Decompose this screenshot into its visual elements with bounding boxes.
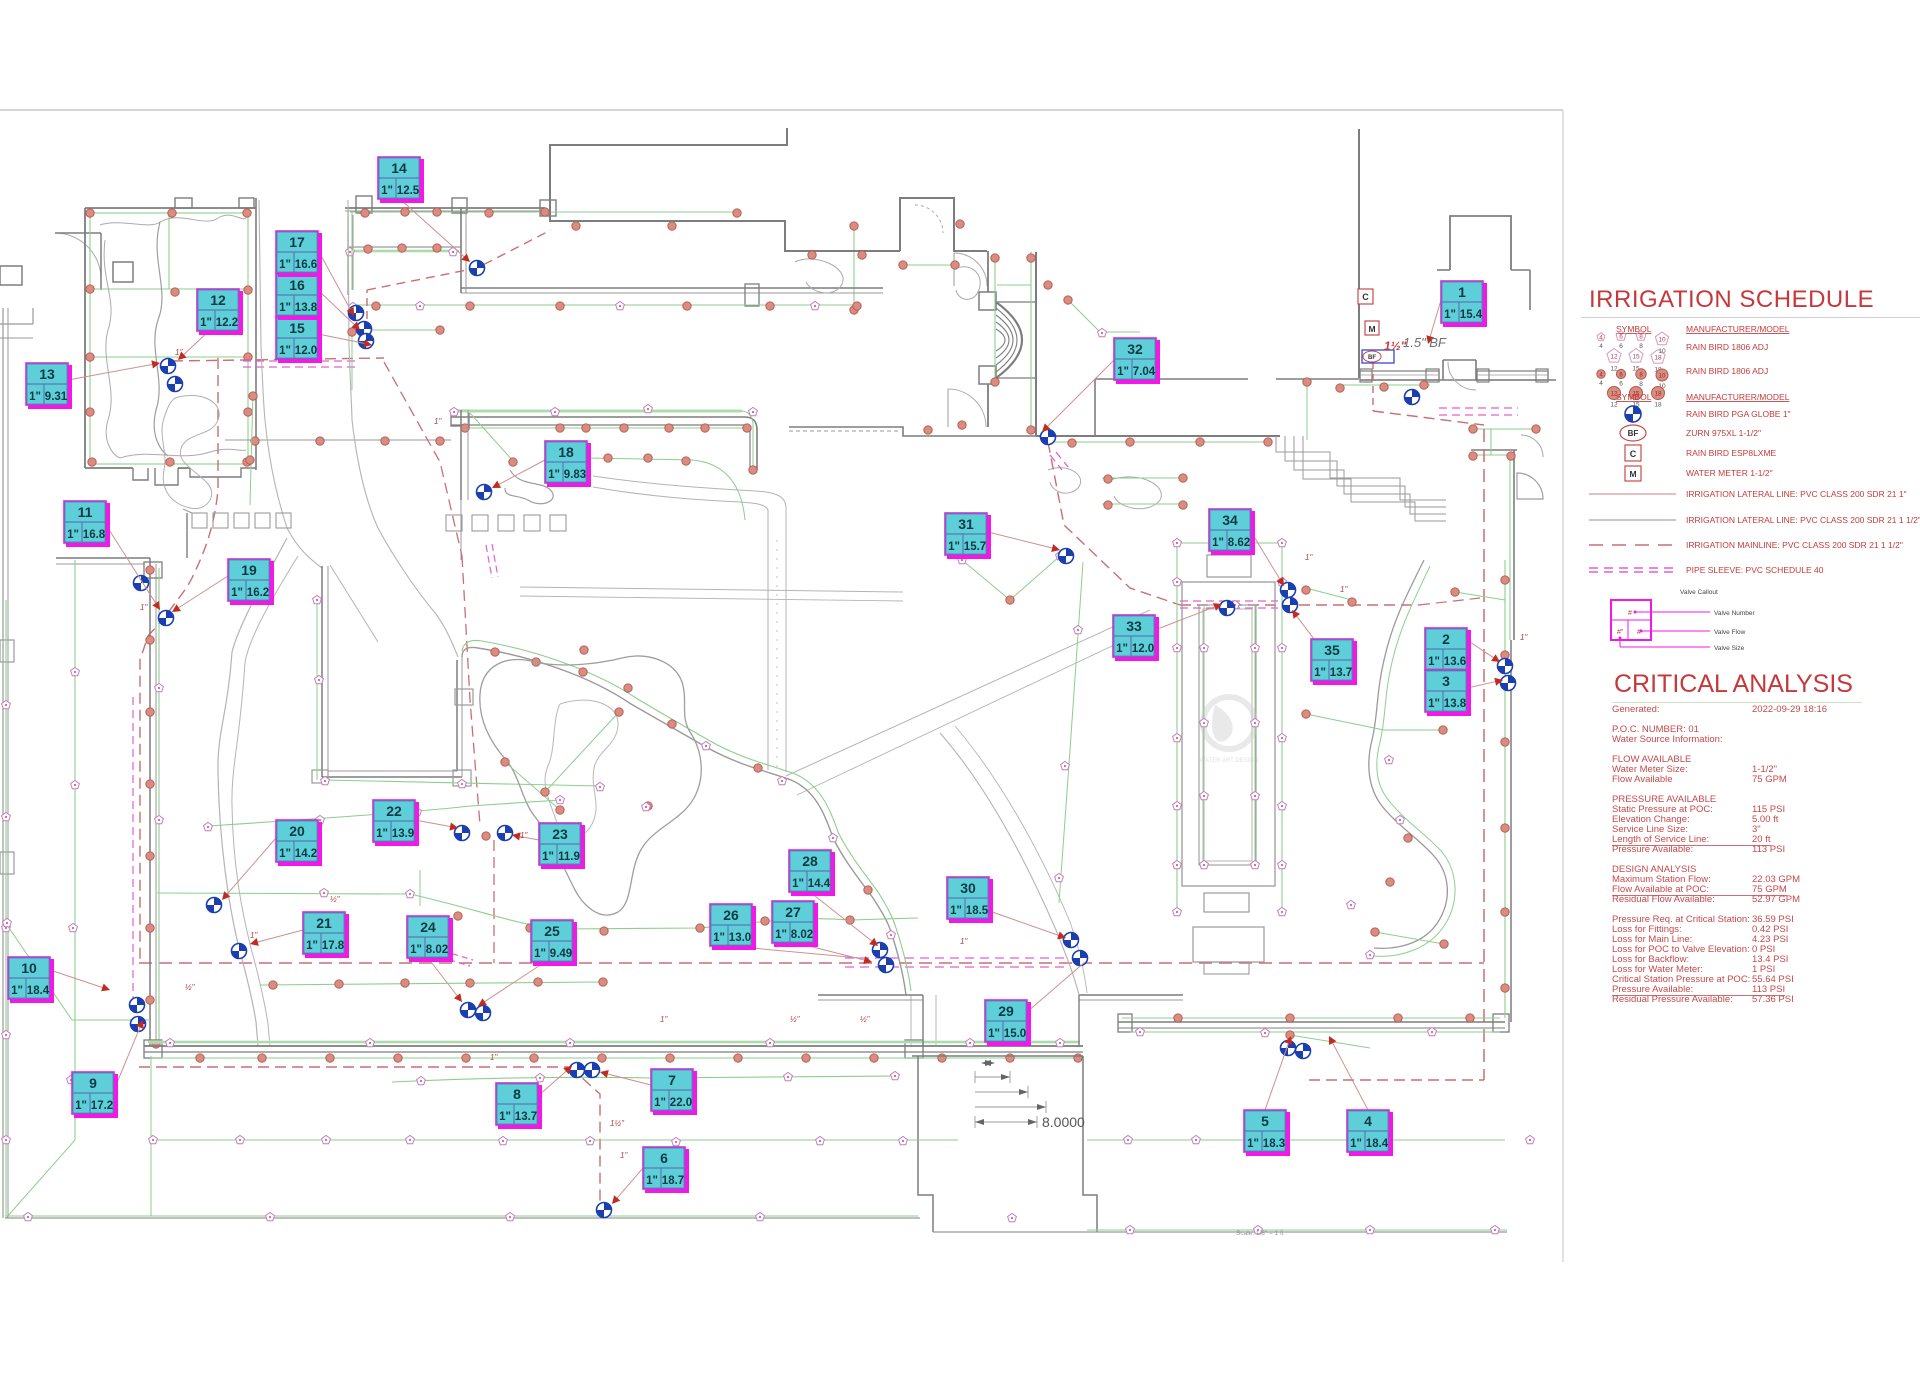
svg-text:Valve Size: Valve Size [1714,645,1745,652]
svg-text:18: 18 [1654,355,1662,362]
svg-text:15: 15 [1632,354,1640,361]
svg-text:WATER METER 1-1/2": WATER METER 1-1/2" [1686,468,1773,478]
svg-text:4: 4 [1599,335,1603,342]
svg-text:4: 4 [1599,380,1603,387]
svg-text:#: # [1628,610,1632,617]
svg-text:12: 12 [1610,402,1618,409]
svg-text:SYMBOL: SYMBOL [1616,324,1652,334]
svg-text:Valve Callout: Valve Callout [1680,589,1718,596]
svg-text:6: 6 [1619,334,1623,341]
svg-text:RAIN BIRD 1806 ADJ: RAIN BIRD 1806 ADJ [1686,342,1768,352]
svg-text:10: 10 [1658,337,1666,344]
svg-text:6: 6 [1619,343,1623,350]
svg-text:6: 6 [1619,381,1623,388]
svg-text:10: 10 [1659,374,1666,380]
svg-text:MANUFACTURER/MODEL: MANUFACTURER/MODEL [1686,324,1790,334]
svg-text:Valve Flow: Valve Flow [1714,629,1746,636]
svg-text:RAIN BIRD ESP8LXME: RAIN BIRD ESP8LXME [1686,448,1777,458]
svg-text:4: 4 [1599,343,1603,350]
svg-text:18: 18 [1654,402,1662,409]
svg-text:18: 18 [1655,392,1662,398]
svg-text:12: 12 [1610,354,1618,361]
svg-text:MANUFACTURER/MODEL: MANUFACTURER/MODEL [1686,392,1790,402]
svg-text:IRRIGATION MAINLINE: PVC CLASS: IRRIGATION MAINLINE: PVC CLASS 200 SDR 2… [1686,540,1903,550]
svg-text:#": #" [1617,629,1624,636]
svg-text:SYMBOL: SYMBOL [1616,392,1652,402]
svg-text:ZURN 975XL 1-1/2": ZURN 975XL 1-1/2" [1686,428,1761,438]
svg-text:PIPE SLEEVE: PVC SCHEDULE 40: PIPE SLEEVE: PVC SCHEDULE 40 [1686,565,1824,575]
svg-text:8: 8 [1639,343,1643,350]
svg-text:IRRIGATION LATERAL LINE: PVC C: IRRIGATION LATERAL LINE: PVC CLASS 200 S… [1686,515,1920,525]
svg-text:RAIN BIRD 1806 ADJ: RAIN BIRD 1806 ADJ [1686,366,1768,376]
svg-text:C: C [1630,449,1637,459]
svg-text:BF: BF [1628,429,1639,438]
svg-text:IRRIGATION LATERAL LINE: PVC C: IRRIGATION LATERAL LINE: PVC CLASS 200 S… [1686,489,1907,499]
svg-text:RAIN BIRD PGA GLOBE 1": RAIN BIRD PGA GLOBE 1" [1686,409,1791,419]
svg-text:M: M [1629,469,1636,479]
svg-text:8: 8 [1639,334,1643,341]
svg-text:Valve Number: Valve Number [1714,610,1756,617]
